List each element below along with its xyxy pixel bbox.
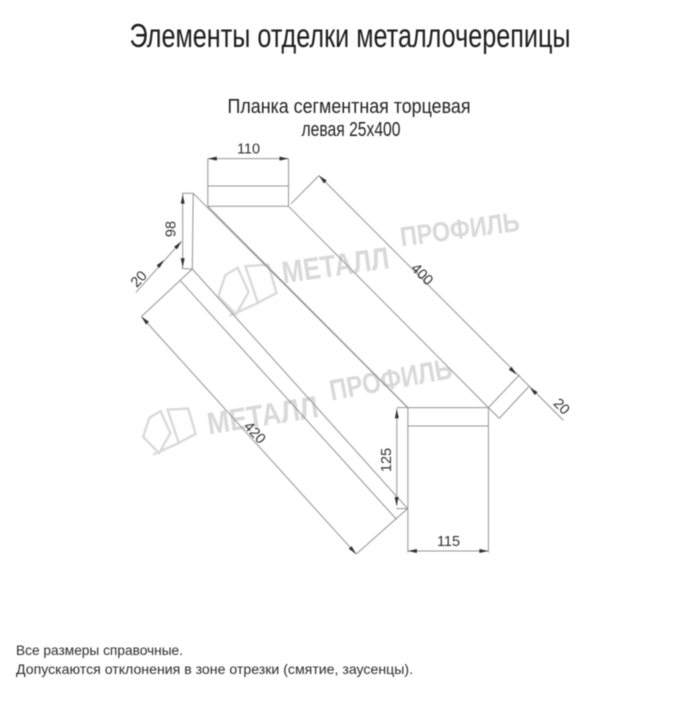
svg-text:Планка сегментная торцевая: Планка сегментная торцевая [228,96,471,118]
svg-text:левая 25х400: левая 25х400 [302,119,401,141]
svg-text:115: 115 [437,534,460,550]
svg-text:Элементы отделки металлочерепи: Элементы отделки металлочерепицы [130,17,571,54]
svg-text:110: 110 [237,141,260,157]
svg-text:Все размеры справочные.: Все размеры справочные. [16,642,183,658]
svg-text:125: 125 [379,448,395,472]
svg-text:Допускаются отклонения в зоне: Допускаются отклонения в зоне отрезки (с… [16,661,413,677]
svg-text:98: 98 [163,221,179,237]
